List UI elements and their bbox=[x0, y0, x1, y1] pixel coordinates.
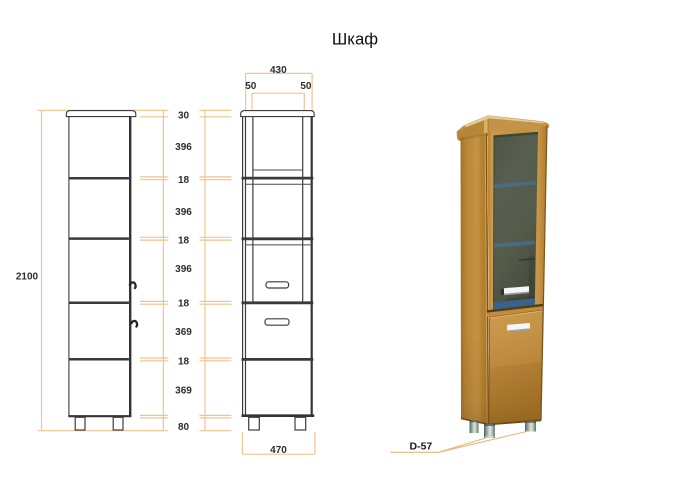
svg-text:80: 80 bbox=[178, 422, 190, 433]
svg-text:30: 30 bbox=[178, 110, 190, 121]
svg-text:50: 50 bbox=[300, 81, 312, 92]
svg-text:396: 396 bbox=[175, 142, 192, 153]
svg-text:430: 430 bbox=[270, 65, 287, 76]
svg-text:2100: 2100 bbox=[16, 271, 39, 282]
svg-text:470: 470 bbox=[270, 445, 287, 456]
svg-text:18: 18 bbox=[178, 235, 190, 246]
svg-text:D-57: D-57 bbox=[410, 441, 433, 453]
svg-text:369: 369 bbox=[175, 385, 192, 396]
svg-text:396: 396 bbox=[175, 207, 192, 218]
svg-text:50: 50 bbox=[245, 81, 257, 92]
svg-text:369: 369 bbox=[175, 327, 192, 338]
svg-text:18: 18 bbox=[178, 175, 190, 186]
svg-text:18: 18 bbox=[178, 357, 190, 368]
svg-text:396: 396 bbox=[175, 264, 192, 275]
svg-text:Шкаф: Шкаф bbox=[332, 29, 378, 48]
svg-text:18: 18 bbox=[178, 298, 190, 309]
